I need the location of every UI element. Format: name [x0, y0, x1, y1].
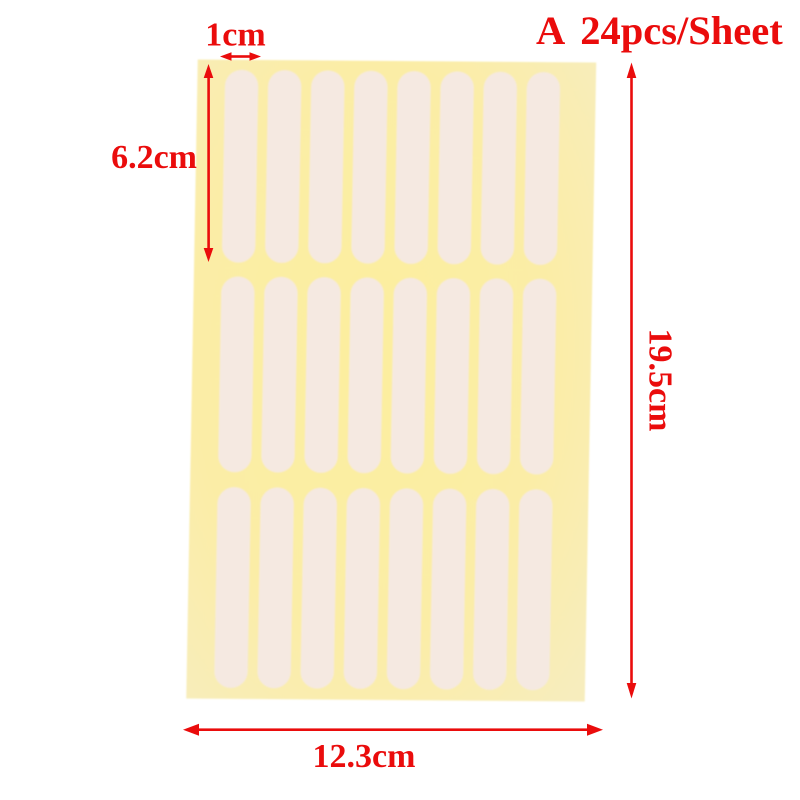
svg-text:6.2cm: 6.2cm	[111, 139, 197, 176]
svg-text:1cm: 1cm	[205, 17, 265, 54]
svg-text:A24pcs/Sheet: A24pcs/Sheet	[536, 8, 783, 53]
svg-text:12.3cm: 12.3cm	[313, 738, 416, 775]
svg-text:19.5cm: 19.5cm	[642, 329, 679, 432]
